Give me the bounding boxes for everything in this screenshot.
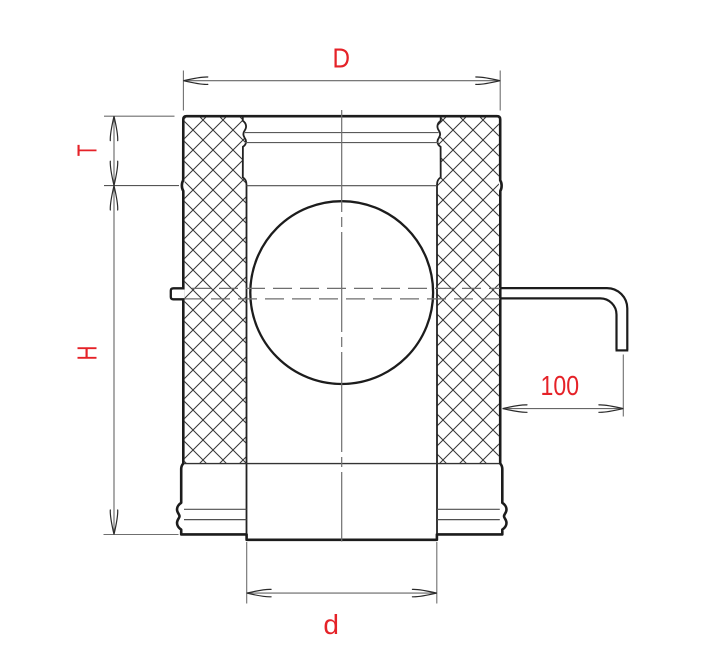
svg-text:T: T [72,144,103,156]
svg-text:D: D [332,42,350,73]
svg-text:d: d [323,609,339,640]
svg-text:H: H [71,346,102,361]
svg-text:100: 100 [541,370,580,401]
